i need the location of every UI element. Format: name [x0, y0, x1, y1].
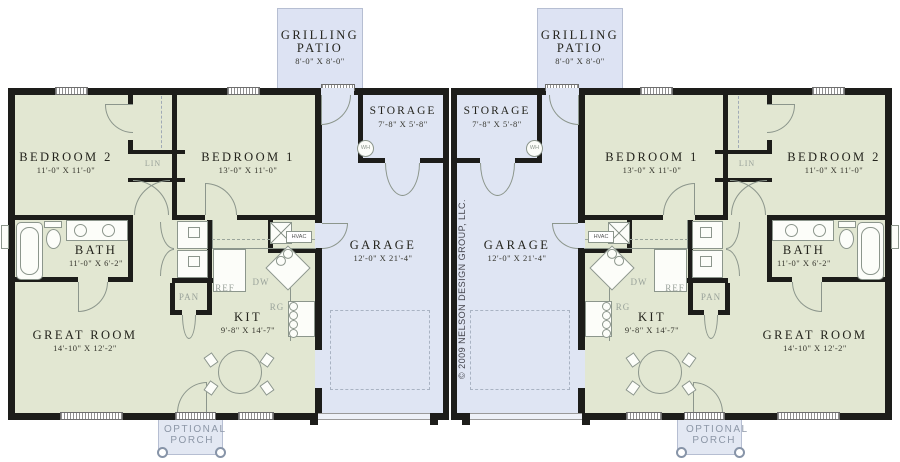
sink	[74, 224, 87, 237]
label-hvac-left: HVAC	[286, 231, 312, 243]
label-hvac-right: HVAC	[588, 231, 614, 243]
room-label-garage-left: GARAGE 12'-0" X 21'-4"	[320, 239, 446, 263]
wall	[172, 215, 205, 220]
counter-edge	[687, 220, 688, 248]
wall	[515, 158, 542, 163]
room-name: GRILLING PATIO	[537, 29, 623, 55]
wall	[170, 310, 182, 315]
sink	[813, 224, 826, 237]
room-dims: 9'-8" X 14'-7"	[200, 325, 296, 335]
bathtub-inner	[20, 227, 39, 275]
window	[55, 87, 88, 95]
room-dims: 13'-0" X 11'-0"	[196, 165, 300, 175]
room-label-porch-right: OPTIONAL PORCH	[684, 424, 740, 446]
label-rg-right: RG	[612, 303, 634, 312]
room-name: STORAGE	[454, 105, 540, 118]
wall	[237, 215, 322, 220]
room-dims: 7'-8" X 5'-8"	[360, 119, 446, 129]
room-label-kitchen-left: KIT 9'-8" X 14'-7"	[200, 311, 296, 335]
wall	[358, 158, 385, 163]
washer-detail	[188, 227, 200, 238]
room-label-great-room-left: GREAT ROOM 14'-10" X 12'-2"	[22, 329, 148, 353]
wall	[315, 388, 322, 413]
label-pan-right: PAN	[692, 293, 730, 302]
porch-line1: OPTIONAL	[684, 424, 740, 435]
room-name: BEDROOM 2	[14, 151, 118, 164]
exterior-equipment	[891, 225, 899, 249]
room-name: STORAGE	[360, 105, 446, 118]
label-pan-left: PAN	[170, 293, 208, 302]
front-door-threshold	[684, 412, 725, 420]
washer-detail	[700, 227, 712, 238]
label-lin-left: LIN	[134, 159, 172, 168]
patio-door-opening	[321, 88, 354, 95]
window	[626, 412, 662, 420]
window	[812, 87, 845, 95]
garage-door-jamb	[310, 413, 318, 425]
porch-post	[676, 447, 687, 458]
room-name: GREAT ROOM	[752, 329, 878, 342]
wall	[8, 88, 15, 420]
porch-line2: PORCH	[684, 435, 740, 446]
room-label-storage-right: STORAGE 7'-8" X 5'-8"	[454, 105, 540, 129]
porch-line2: PORCH	[162, 435, 218, 446]
window	[227, 87, 260, 95]
room-label-grilling-patio-left: GRILLING PATIO 8'-0" X 8'-0"	[277, 29, 363, 66]
wall	[723, 95, 728, 215]
wall	[578, 215, 663, 220]
wall	[315, 248, 322, 350]
room-dims: 11'-0" X 6'-2"	[766, 258, 842, 268]
room-name: GARAGE	[320, 239, 446, 252]
wall	[885, 88, 892, 420]
burner	[289, 302, 298, 311]
room-label-porch-left: OPTIONAL PORCH	[162, 424, 218, 446]
room-dims: 12'-0" X 21'-4"	[320, 253, 446, 263]
wall	[718, 310, 730, 315]
room-name: BATH	[766, 244, 842, 257]
garage-door	[318, 413, 430, 420]
label-rg-left: RG	[266, 303, 288, 312]
room-label-kitchen-right: KIT 9'-8" X 14'-7"	[604, 311, 700, 335]
room-name: GRILLING PATIO	[277, 29, 363, 55]
window	[640, 87, 673, 95]
garage-door-jamb	[430, 413, 438, 425]
wall	[767, 277, 792, 282]
room-label-bedroom2-right: BEDROOM 2 11'-0" X 11'-0"	[782, 151, 886, 175]
label-wh-right: WH	[526, 140, 543, 157]
room-dims: 11'-0" X 11'-0"	[14, 165, 118, 175]
sink	[785, 224, 798, 237]
porch-post	[734, 447, 745, 458]
room-label-storage-left: STORAGE 7'-8" X 5'-8"	[360, 105, 446, 129]
room-name: GREAT ROOM	[22, 329, 148, 342]
room-name: BATH	[58, 244, 134, 257]
attic-access-line	[738, 96, 739, 148]
label-lin-right: LIN	[728, 159, 766, 168]
room-label-grilling-patio-right: GRILLING PATIO 8'-0" X 8'-0"	[537, 29, 623, 66]
wall	[578, 388, 585, 413]
label-ref-right: REF	[658, 284, 692, 293]
room-name: BEDROOM 1	[600, 151, 704, 164]
label-wh-left: WH	[357, 140, 374, 157]
garage-door	[470, 413, 582, 420]
sink	[102, 224, 115, 237]
room-dims: 12'-0" X 21'-4"	[454, 253, 580, 263]
room-name: KIT	[200, 311, 296, 324]
front-door-threshold	[175, 412, 216, 420]
garage-door-track	[330, 310, 430, 390]
garage-door-jamb	[582, 413, 590, 425]
counter-edge	[212, 220, 213, 248]
dryer-detail	[700, 256, 712, 267]
porch-post	[215, 447, 226, 458]
wall	[767, 140, 772, 150]
room-label-bedroom1-right: BEDROOM 1 13'-0" X 11'-0"	[600, 151, 704, 175]
room-name: GARAGE	[454, 239, 580, 252]
room-dims: 8'-0" X 8'-0"	[537, 56, 623, 66]
toilet-tank	[838, 221, 856, 228]
wall	[695, 215, 728, 220]
room-label-bedroom1-left: BEDROOM 1 13'-0" X 11'-0"	[196, 151, 300, 175]
room-dims: 11'-0" X 11'-0"	[782, 165, 886, 175]
wall	[108, 277, 133, 282]
label-ref-left: REF	[208, 284, 242, 293]
patio-door-opening	[546, 88, 579, 95]
room-dims: 11'-0" X 6'-2"	[58, 258, 134, 268]
bathtub-inner	[861, 227, 880, 275]
floor-plan: GRILLING PATIO 8'-0" X 8'-0" GRILLING PA…	[0, 0, 900, 462]
dining-table	[218, 350, 262, 394]
attic-access-line	[161, 96, 162, 148]
dining-table	[638, 350, 682, 394]
room-dims: 14'-10" X 12'-2"	[752, 343, 878, 353]
wall	[128, 140, 133, 150]
exterior-equipment	[1, 225, 9, 249]
wall	[578, 95, 585, 223]
porch-line1: OPTIONAL	[162, 424, 218, 435]
room-name: KIT	[604, 311, 700, 324]
copyright-text: © 2009 NELSON DESIGN GROUP, LLC.	[457, 179, 467, 399]
room-label-great-room-right: GREAT ROOM 14'-10" X 12'-2"	[752, 329, 878, 353]
porch-post	[157, 447, 168, 458]
room-label-bath-right: BATH 11'-0" X 6'-2"	[766, 244, 842, 268]
room-dims: 8'-0" X 8'-0"	[277, 56, 363, 66]
garage-door-jamb	[462, 413, 470, 425]
room-label-garage-right: GARAGE 12'-0" X 21'-4"	[454, 239, 580, 263]
label-dw-left: DW	[247, 278, 275, 287]
room-name: BEDROOM 2	[782, 151, 886, 164]
toilet-tank	[44, 221, 62, 228]
room-dims: 7'-8" X 5'-8"	[454, 119, 540, 129]
window	[238, 412, 274, 420]
wall	[172, 95, 177, 215]
label-dw-right: DW	[625, 278, 653, 287]
window	[777, 412, 840, 420]
room-label-bedroom2-left: BEDROOM 2 11'-0" X 11'-0"	[14, 151, 118, 175]
room-dims: 9'-8" X 14'-7"	[604, 325, 700, 335]
window	[60, 412, 123, 420]
dryer-detail	[188, 256, 200, 267]
room-dims: 13'-0" X 11'-0"	[600, 165, 704, 175]
wall	[578, 248, 585, 350]
garage-door-track	[470, 310, 570, 390]
burner	[602, 302, 611, 311]
room-name: BEDROOM 1	[196, 151, 300, 164]
room-dims: 14'-10" X 12'-2"	[22, 343, 148, 353]
room-label-bath-left: BATH 11'-0" X 6'-2"	[58, 244, 134, 268]
